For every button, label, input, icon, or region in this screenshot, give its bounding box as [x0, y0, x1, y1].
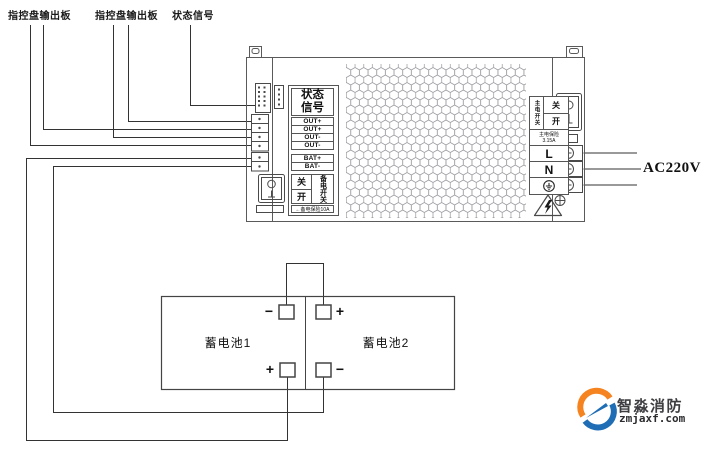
battery1-minus-terminal: [279, 305, 294, 319]
main-switch-name-label: 主电开关: [530, 97, 544, 129]
battery1-plus-terminal: [280, 363, 295, 377]
ground-terminal-cell: [530, 177, 568, 194]
label-control-panel-output-board-2: 指控盘输出板: [95, 7, 158, 22]
backup-switch-positions: 关 开: [291, 174, 312, 204]
battery1-bottom-polarity: +: [263, 361, 277, 377]
psu-mains-panel: 主电开关 关 开 主电保险 3.15A L N: [529, 96, 569, 195]
label-control-panel-output-board-1: 指控盘输出板: [8, 7, 71, 22]
battery2-plus-terminal: [316, 305, 331, 319]
psu-left-label-panel: 状态 信号 OUT+ OUT+ OUT- OUT- BAT+ BAT- 关 开 …: [288, 85, 339, 216]
status-line2: 信号: [301, 102, 324, 115]
wire-status-signal: [191, 25, 256, 106]
wiring-diagram-art: [0, 0, 707, 450]
battery2-minus-terminal: [316, 363, 331, 377]
wire-out-minus-2: [31, 25, 252, 146]
wiring-diagram-page: 指控盘输出板 指控盘输出板 状态信号 状态 信号 OUT+ OUT+ OUT- …: [0, 0, 707, 450]
wire-out-minus-1: [114, 25, 252, 138]
vent-grid: [346, 64, 526, 218]
bat-minus-label: BAT-: [291, 162, 334, 171]
backup-fuse-holder: [257, 206, 284, 213]
logo-website: zmjaxf.com: [619, 412, 685, 425]
battery1-name: 蓄电池1: [193, 334, 263, 351]
battery2-bottom-polarity: −: [333, 361, 347, 377]
out-minus-2-label: OUT-: [291, 141, 334, 150]
label-status-signal: 状态信号: [172, 7, 214, 22]
backup-fuse-note: ←备电保险10A: [291, 205, 334, 213]
ac-wires: [584, 153, 642, 185]
battery-terminal-block: [252, 153, 269, 172]
battery2-top-polarity: +: [333, 303, 347, 319]
status-signal-panel-label: 状态 信号: [291, 88, 334, 116]
ground-icon: [541, 179, 557, 193]
ac-input-label: AC220V: [643, 160, 701, 177]
signal-wires: [31, 25, 256, 146]
neutral-terminal-label: N: [530, 161, 568, 177]
main-fuse-label: 主电保险 3.15A: [530, 129, 568, 145]
logo-icon: [580, 391, 614, 428]
backup-switch-on-label: 开: [292, 190, 311, 204]
battery2-name: 蓄电池2: [351, 334, 421, 351]
backup-switch-name-label: 备电开关: [311, 174, 334, 204]
case-screw: [555, 196, 565, 206]
mounting-slot-right: [570, 49, 579, 54]
main-fuse-rating: 3.15A: [542, 138, 555, 144]
battery-wires: [27, 159, 324, 441]
status-line1: 状态: [301, 89, 324, 102]
battery1-top-polarity: −: [262, 303, 276, 319]
main-switch-off-label: 关: [544, 97, 568, 113]
line-terminal-label: L: [530, 145, 568, 161]
wire-bat-minus: [54, 167, 324, 413]
status-pin-connector: [256, 84, 284, 113]
wire-out-plus-2: [44, 25, 252, 130]
backup-switch-off-label: 关: [292, 175, 311, 190]
wire-bat-plus: [27, 159, 288, 441]
backup-rocker-switch: [259, 175, 285, 203]
output-terminal-block: [252, 115, 269, 152]
main-switch-on-label: 开: [544, 113, 568, 129]
mounting-slot-left: [252, 49, 259, 54]
